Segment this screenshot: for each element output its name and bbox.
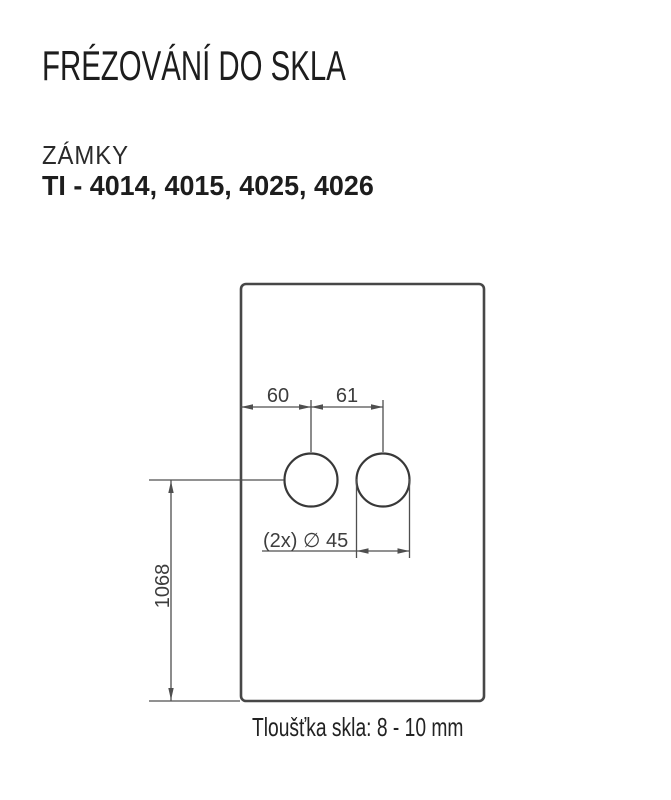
dim-label-spacing: 61 [336,385,358,407]
technical-drawing: 60 61 1068 (2x) ∅ 45 [0,0,671,800]
arrowhead-diameter-left [357,548,369,553]
page: FRÉZOVÁNÍ DO SKLA ZÁMKY TI - 4014, 4015,… [0,0,671,800]
arrowhead-61-right [371,404,383,409]
arrowhead-height-bottom [168,688,173,700]
arrowhead-61-left [311,404,323,409]
glass-thickness-note: Tloušťka skla: 8 - 10 mm [252,714,463,740]
arrowhead-60-right [299,404,311,409]
dim-label-diameter: (2x) ∅ 45 [263,530,348,552]
arrowhead-60-left [241,404,253,409]
dim-label-height: 1068 [152,564,174,609]
hole-left [285,454,338,507]
dim-label-offset: 60 [267,385,289,407]
glass-panel-outline [241,284,484,701]
arrowhead-diameter-right [398,548,410,553]
hole-right [357,454,410,507]
arrowhead-height-top [168,481,173,493]
